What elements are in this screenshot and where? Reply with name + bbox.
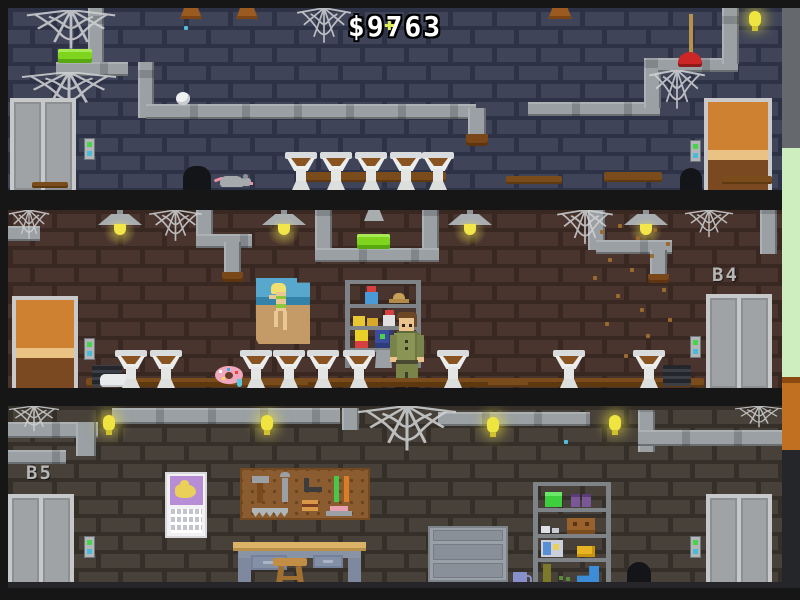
elevator-call-button[interactable]	[84, 138, 95, 160]
ceiling-lamp	[448, 210, 492, 246]
fly-speck	[564, 440, 568, 444]
spider-web-icon[interactable]	[734, 406, 782, 428]
fly-speck	[593, 276, 597, 280]
spider-web-icon[interactable]	[148, 210, 203, 242]
bottle-icon	[355, 330, 368, 348]
urinal[interactable]	[150, 350, 182, 388]
fly-speck	[662, 288, 666, 292]
cardboard-box-icon	[585, 522, 589, 526]
wall-bulb	[484, 416, 502, 440]
fly-speck	[624, 354, 628, 358]
paper-ball[interactable]	[176, 92, 190, 105]
pipe	[224, 242, 241, 274]
fly-speck	[616, 294, 620, 298]
wall-bulb	[100, 414, 118, 438]
floor-hole[interactable]	[680, 168, 702, 190]
pipe	[315, 248, 439, 262]
pipe	[438, 412, 590, 426]
slime-cartridge[interactable]	[357, 234, 390, 249]
wrench-icon	[282, 478, 288, 502]
ceiling-mount	[180, 8, 202, 19]
right-edge-orange	[782, 377, 800, 450]
floor-grate[interactable]	[663, 365, 691, 386]
ceiling-lamp	[262, 210, 306, 246]
elevator-door[interactable]	[706, 294, 772, 388]
urinal[interactable]	[273, 350, 305, 388]
cloth-icon	[541, 526, 550, 533]
sponge-icon	[367, 318, 378, 326]
floor-label: B5	[26, 462, 53, 484]
fly-speck	[605, 322, 609, 326]
urinal[interactable]	[285, 152, 317, 190]
right-edge-green	[782, 148, 800, 377]
storage-shelf	[533, 482, 611, 588]
sandwich-icon	[302, 507, 318, 511]
hammer-icon	[257, 483, 263, 503]
pipe	[528, 102, 660, 116]
fly-speck	[630, 268, 634, 272]
hat-icon	[389, 299, 409, 303]
elevator-door[interactable]	[10, 98, 76, 190]
urinal[interactable]	[115, 350, 147, 388]
fly-speck	[666, 242, 670, 246]
money-counter: $9763	[348, 10, 442, 43]
urinal[interactable]	[633, 350, 665, 388]
elevator-call-button[interactable]	[84, 338, 95, 360]
floor-b4: B4	[8, 210, 782, 388]
wall-bulb	[258, 414, 276, 438]
fly-speck	[640, 308, 644, 312]
pegboard	[240, 468, 370, 520]
urinal[interactable]	[320, 152, 352, 190]
floor-label: B4	[712, 264, 739, 286]
pebble-icon	[559, 576, 563, 580]
cloth-icon	[552, 528, 559, 533]
wooden-door[interactable]	[12, 296, 78, 388]
elevator-call-button[interactable]	[690, 336, 701, 358]
urinal[interactable]	[240, 350, 272, 388]
saw-icon	[252, 508, 288, 517]
floor-edge	[8, 582, 782, 588]
pipe-rust-leak[interactable]	[466, 134, 488, 146]
urinal[interactable]	[422, 152, 454, 190]
urinal[interactable]	[553, 350, 585, 388]
floor-b3: $9763	[8, 8, 782, 190]
janitor[interactable]	[388, 312, 426, 388]
floor-hole[interactable]	[183, 166, 211, 190]
boot-icon	[577, 566, 599, 582]
fly-speck	[600, 230, 604, 234]
bottle-icon	[543, 564, 551, 582]
right-edge-dark	[782, 450, 800, 588]
fly-speck	[608, 258, 612, 262]
pipe	[76, 422, 96, 456]
dirt-patch[interactable]	[604, 172, 662, 182]
ceiling-mount	[364, 210, 384, 221]
elevator-door[interactable]	[8, 494, 74, 588]
elevator-door[interactable]	[706, 494, 772, 588]
ceiling-lamp	[98, 210, 142, 246]
cardboard-box-icon	[567, 518, 595, 534]
ceiling-mount	[548, 8, 572, 19]
wall-bulb	[746, 10, 764, 34]
tool-cabinet[interactable]	[428, 526, 508, 588]
spider-web-icon[interactable]	[25, 10, 117, 50]
fly-speck	[668, 318, 672, 322]
pipe-rust-leak[interactable]	[222, 272, 243, 282]
cheese-icon	[577, 546, 595, 557]
urinal[interactable]	[355, 152, 387, 190]
elevator-call-button[interactable]	[690, 140, 701, 162]
cardboard-box-icon	[573, 522, 577, 526]
fly-speck	[618, 224, 622, 228]
spider-web-icon[interactable]	[8, 210, 50, 240]
ceiling-mount	[236, 8, 258, 19]
calendar-icon[interactable]	[165, 472, 207, 538]
rat-icon[interactable]	[214, 170, 254, 190]
dirt-patch[interactable]	[506, 176, 562, 184]
hammer-icon	[252, 476, 269, 483]
spider-web-icon[interactable]	[356, 406, 458, 452]
plunger-icon[interactable]	[689, 14, 693, 56]
jar-icon	[571, 494, 580, 507]
jar-icon	[582, 494, 591, 507]
pipe	[722, 8, 739, 64]
fly-speck	[650, 254, 654, 258]
sponge-icon	[353, 316, 365, 326]
plate-icon	[326, 511, 352, 516]
pipe	[760, 210, 777, 254]
box-icon	[380, 334, 385, 339]
elevator-call-button[interactable]	[690, 536, 701, 558]
fly-speck	[636, 236, 640, 240]
wall-bulb	[606, 414, 624, 438]
spider-web-icon[interactable]	[556, 210, 614, 245]
spray-bottle-icon	[365, 292, 378, 304]
pinup-poster[interactable]	[256, 278, 310, 344]
urinal[interactable]	[437, 350, 469, 388]
urinal[interactable]	[307, 350, 339, 388]
floor-b5: B5	[8, 406, 782, 588]
money-value: $9763	[348, 10, 442, 43]
pipe-end	[468, 108, 486, 136]
fly-speck	[653, 228, 657, 232]
right-edge-gray	[782, 8, 800, 148]
square-tool-icon	[304, 478, 322, 492]
game-screen: $9763	[0, 0, 800, 600]
spider-web-icon[interactable]	[296, 8, 352, 44]
urinal[interactable]	[390, 152, 422, 190]
fly-speck	[184, 26, 188, 30]
fly-speck	[646, 334, 650, 338]
plunger-icon[interactable]	[678, 52, 702, 67]
screwdriver-icon	[334, 476, 339, 502]
pipe-rust-leak[interactable]	[648, 274, 669, 283]
spider-web-icon[interactable]	[8, 406, 60, 432]
spider-web-icon[interactable]	[684, 210, 734, 238]
dirt-patch[interactable]	[32, 182, 68, 188]
photo-box-icon	[543, 542, 551, 555]
pipe	[146, 104, 476, 119]
pipe	[112, 408, 340, 424]
dirt-patch[interactable]	[722, 176, 772, 184]
photo-box-icon	[553, 544, 559, 550]
slime-cartridge[interactable]	[58, 49, 92, 63]
pipe	[638, 430, 782, 446]
urinal[interactable]	[343, 350, 375, 388]
box-icon	[545, 492, 562, 507]
pebble-icon	[566, 577, 570, 581]
spider-web-icon[interactable]	[648, 70, 706, 110]
sparkle-icon	[388, 24, 391, 27]
elevator-call-button[interactable]	[84, 536, 95, 558]
screwdriver-icon	[344, 476, 349, 502]
